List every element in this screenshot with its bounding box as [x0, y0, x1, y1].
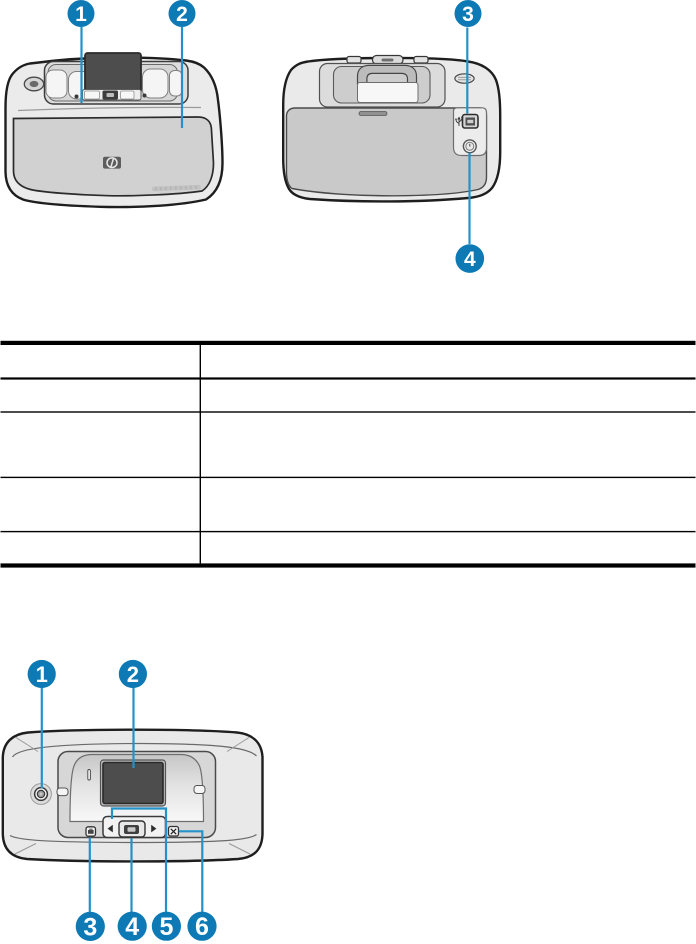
svg-text:6: 6	[195, 913, 209, 941]
svg-text:5: 5	[159, 913, 173, 941]
svg-text:4: 4	[125, 913, 139, 941]
svg-text:2: 2	[176, 3, 188, 26]
svg-text:3: 3	[462, 3, 474, 26]
svg-text:1: 1	[75, 3, 87, 26]
svg-text:2: 2	[127, 662, 139, 687]
svg-text:3: 3	[83, 913, 97, 941]
svg-text:4: 4	[464, 248, 476, 271]
svg-text:1: 1	[36, 662, 48, 687]
